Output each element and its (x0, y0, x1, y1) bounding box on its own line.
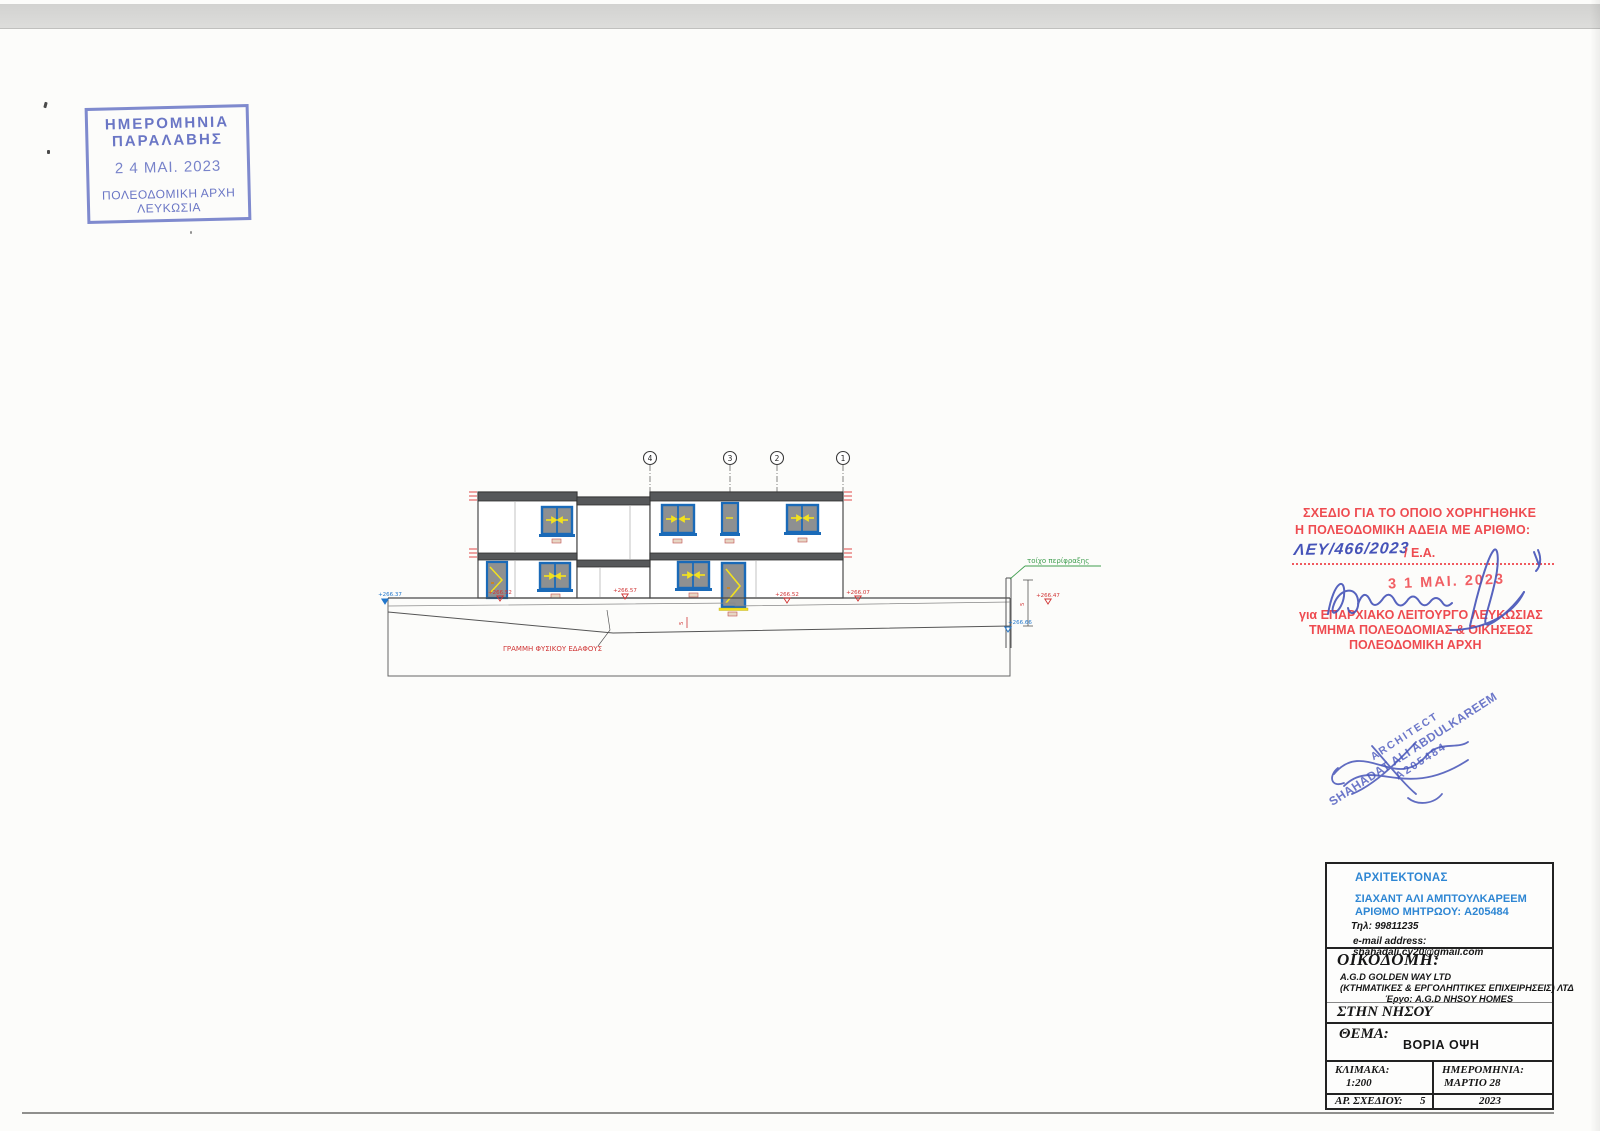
title-block-subject-label: ΘΕΜΑ: (1339, 1026, 1389, 1043)
grid-bubble-4: 4 (648, 454, 653, 463)
svg-text:τοίχο περίφραξης: τοίχο περίφραξης (1027, 557, 1089, 565)
svg-text:+266.47: +266.47 (1036, 593, 1060, 599)
svg-text:+266.37: +266.37 (378, 592, 402, 598)
title-block-sheet-value: 5 (1420, 1095, 1426, 1107)
title-block-column-divider (1432, 1060, 1434, 1108)
ink-speck (43, 102, 47, 109)
permit-stamp-line1: ΣΧΕΔΙΟ ΓΙΑ ΤΟ ΟΠΟΙΟ ΧΟΡΗΓΗΘΗΚΕ (1303, 506, 1536, 520)
grid-bubble-1: 1 (841, 454, 846, 463)
title-block-date-label: ΗΜΕΡΟΜΗΝΙΑ: (1442, 1064, 1524, 1076)
title-block-scale-label: ΚΛΙΜΑΚΑ: (1335, 1064, 1389, 1076)
title-block-building-heading: ΟΙΚΟΔΟΜΗ: (1337, 950, 1440, 970)
title-block-architect-name: ΣΙΑΧΑΝΤ ΑΛΙ ΑΜΠΤΟΥΛΚΑΡΕΕΜ (1355, 893, 1527, 905)
title-block-company2: (ΚΤΗΜΑΤΙΚΕΣ & ΕΡΓΟΛΗΠΤΙΚΕΣ ΕΠΙΧΕΙΡΗΣΕΙΣ)… (1340, 983, 1574, 993)
scan-edge-band (0, 4, 1600, 29)
title-block-architect-heading: ΑΡΧΙΤΕΚΤΟΝΑΣ (1355, 872, 1448, 884)
scanned-drawing-page: ΗΜΕΡΟΜΗΝΙΑ ΠΑΡΑΛΑΒΗΣ 2 4 ΜΑΙ. 2023 ΠΟΛΕΟ… (0, 0, 1600, 1131)
receipt-date-stamp: ΗΜΕΡΟΜΗΝΙΑ ΠΑΡΑΛΑΒΗΣ 2 4 ΜΑΙ. 2023 ΠΟΛΕΟ… (85, 104, 252, 224)
svg-text:+266.52: +266.52 (488, 590, 512, 596)
fence-wall-label: τοίχο περίφραξης (1010, 557, 1101, 579)
elevation-drawing: 4 3 2 1 (370, 430, 1110, 680)
title-block-date-value: ΜΑΡΤΙΟ 28 (1444, 1077, 1501, 1089)
receipt-stamp-line2: ΠΑΡΑΛΑΒΗΣ (88, 130, 246, 151)
title-block-sheet-label: ΑΡ. ΣΧΕΔΙΟΥ: (1335, 1095, 1403, 1107)
grid-bubble-2: 2 (775, 454, 780, 463)
permit-stamp-line2: Η ΠΟΛΕΟΔΟΜΙΚΗ ΑΔΕΙΑ ΜΕ ΑΡΙΘΜΟ: (1295, 523, 1530, 537)
svg-text:+266.52: +266.52 (775, 592, 799, 598)
title-block-divider (1327, 947, 1552, 949)
door-lower-right (719, 563, 748, 616)
scan-edge-right (1590, 0, 1600, 1131)
title-block-divider (1327, 1022, 1552, 1024)
title-block-divider (1327, 1002, 1552, 1003)
title-block-subject-value: ΒΟΡΙΑ ΟΨΗ (1403, 1038, 1479, 1052)
title-block-company1: A.G.D GOLDEN WAY LTD (1340, 972, 1451, 982)
title-block-phone: Τηλ: 99811235 (1351, 921, 1418, 932)
title-block: ΑΡΧΙΤΕΚΤΟΝΑΣ ΣΙΑΧΑΝΤ ΑΛΙ ΑΜΠΤΟΥΛΚΑΡΕΕΜ Α… (1325, 862, 1554, 1110)
page-border-bottom (22, 1112, 1554, 1114)
title-block-divider (1327, 1060, 1552, 1062)
grid-bubbles: 4 3 2 1 (644, 452, 850, 465)
title-block-architect-registry: ΑΡΙΘΜΟ ΜΗΤΡΩΟΥ: A205484 (1355, 906, 1509, 918)
grid-lines (650, 465, 843, 492)
svg-text:+266.57: +266.57 (613, 588, 637, 594)
ink-speck (190, 231, 192, 234)
title-block-year: 2023 (1479, 1095, 1501, 1107)
receipt-stamp-date: 2 4 ΜΑΙ. 2023 (89, 157, 247, 178)
svg-text:+266.07: +266.07 (846, 590, 870, 596)
ink-speck (47, 150, 50, 154)
official-signature-ink (1318, 542, 1563, 654)
architect-signature-ink (1312, 712, 1512, 822)
ground-line-label: ΓΡΑΜΜΗ ΦΥΣΙΚΟΥ ΕΔΑΦΟΥΣ (503, 645, 602, 653)
svg-text:5: 5 (1020, 602, 1026, 606)
svg-text:+266.66: +266.66 (1008, 620, 1032, 626)
grid-bubble-3: 3 (728, 454, 733, 463)
title-block-location: ΣΤΗΝ ΝΗΣΟΥ (1337, 1004, 1433, 1021)
svg-text:5: 5 (679, 621, 685, 625)
title-block-scale-value: 1:200 (1346, 1077, 1372, 1089)
